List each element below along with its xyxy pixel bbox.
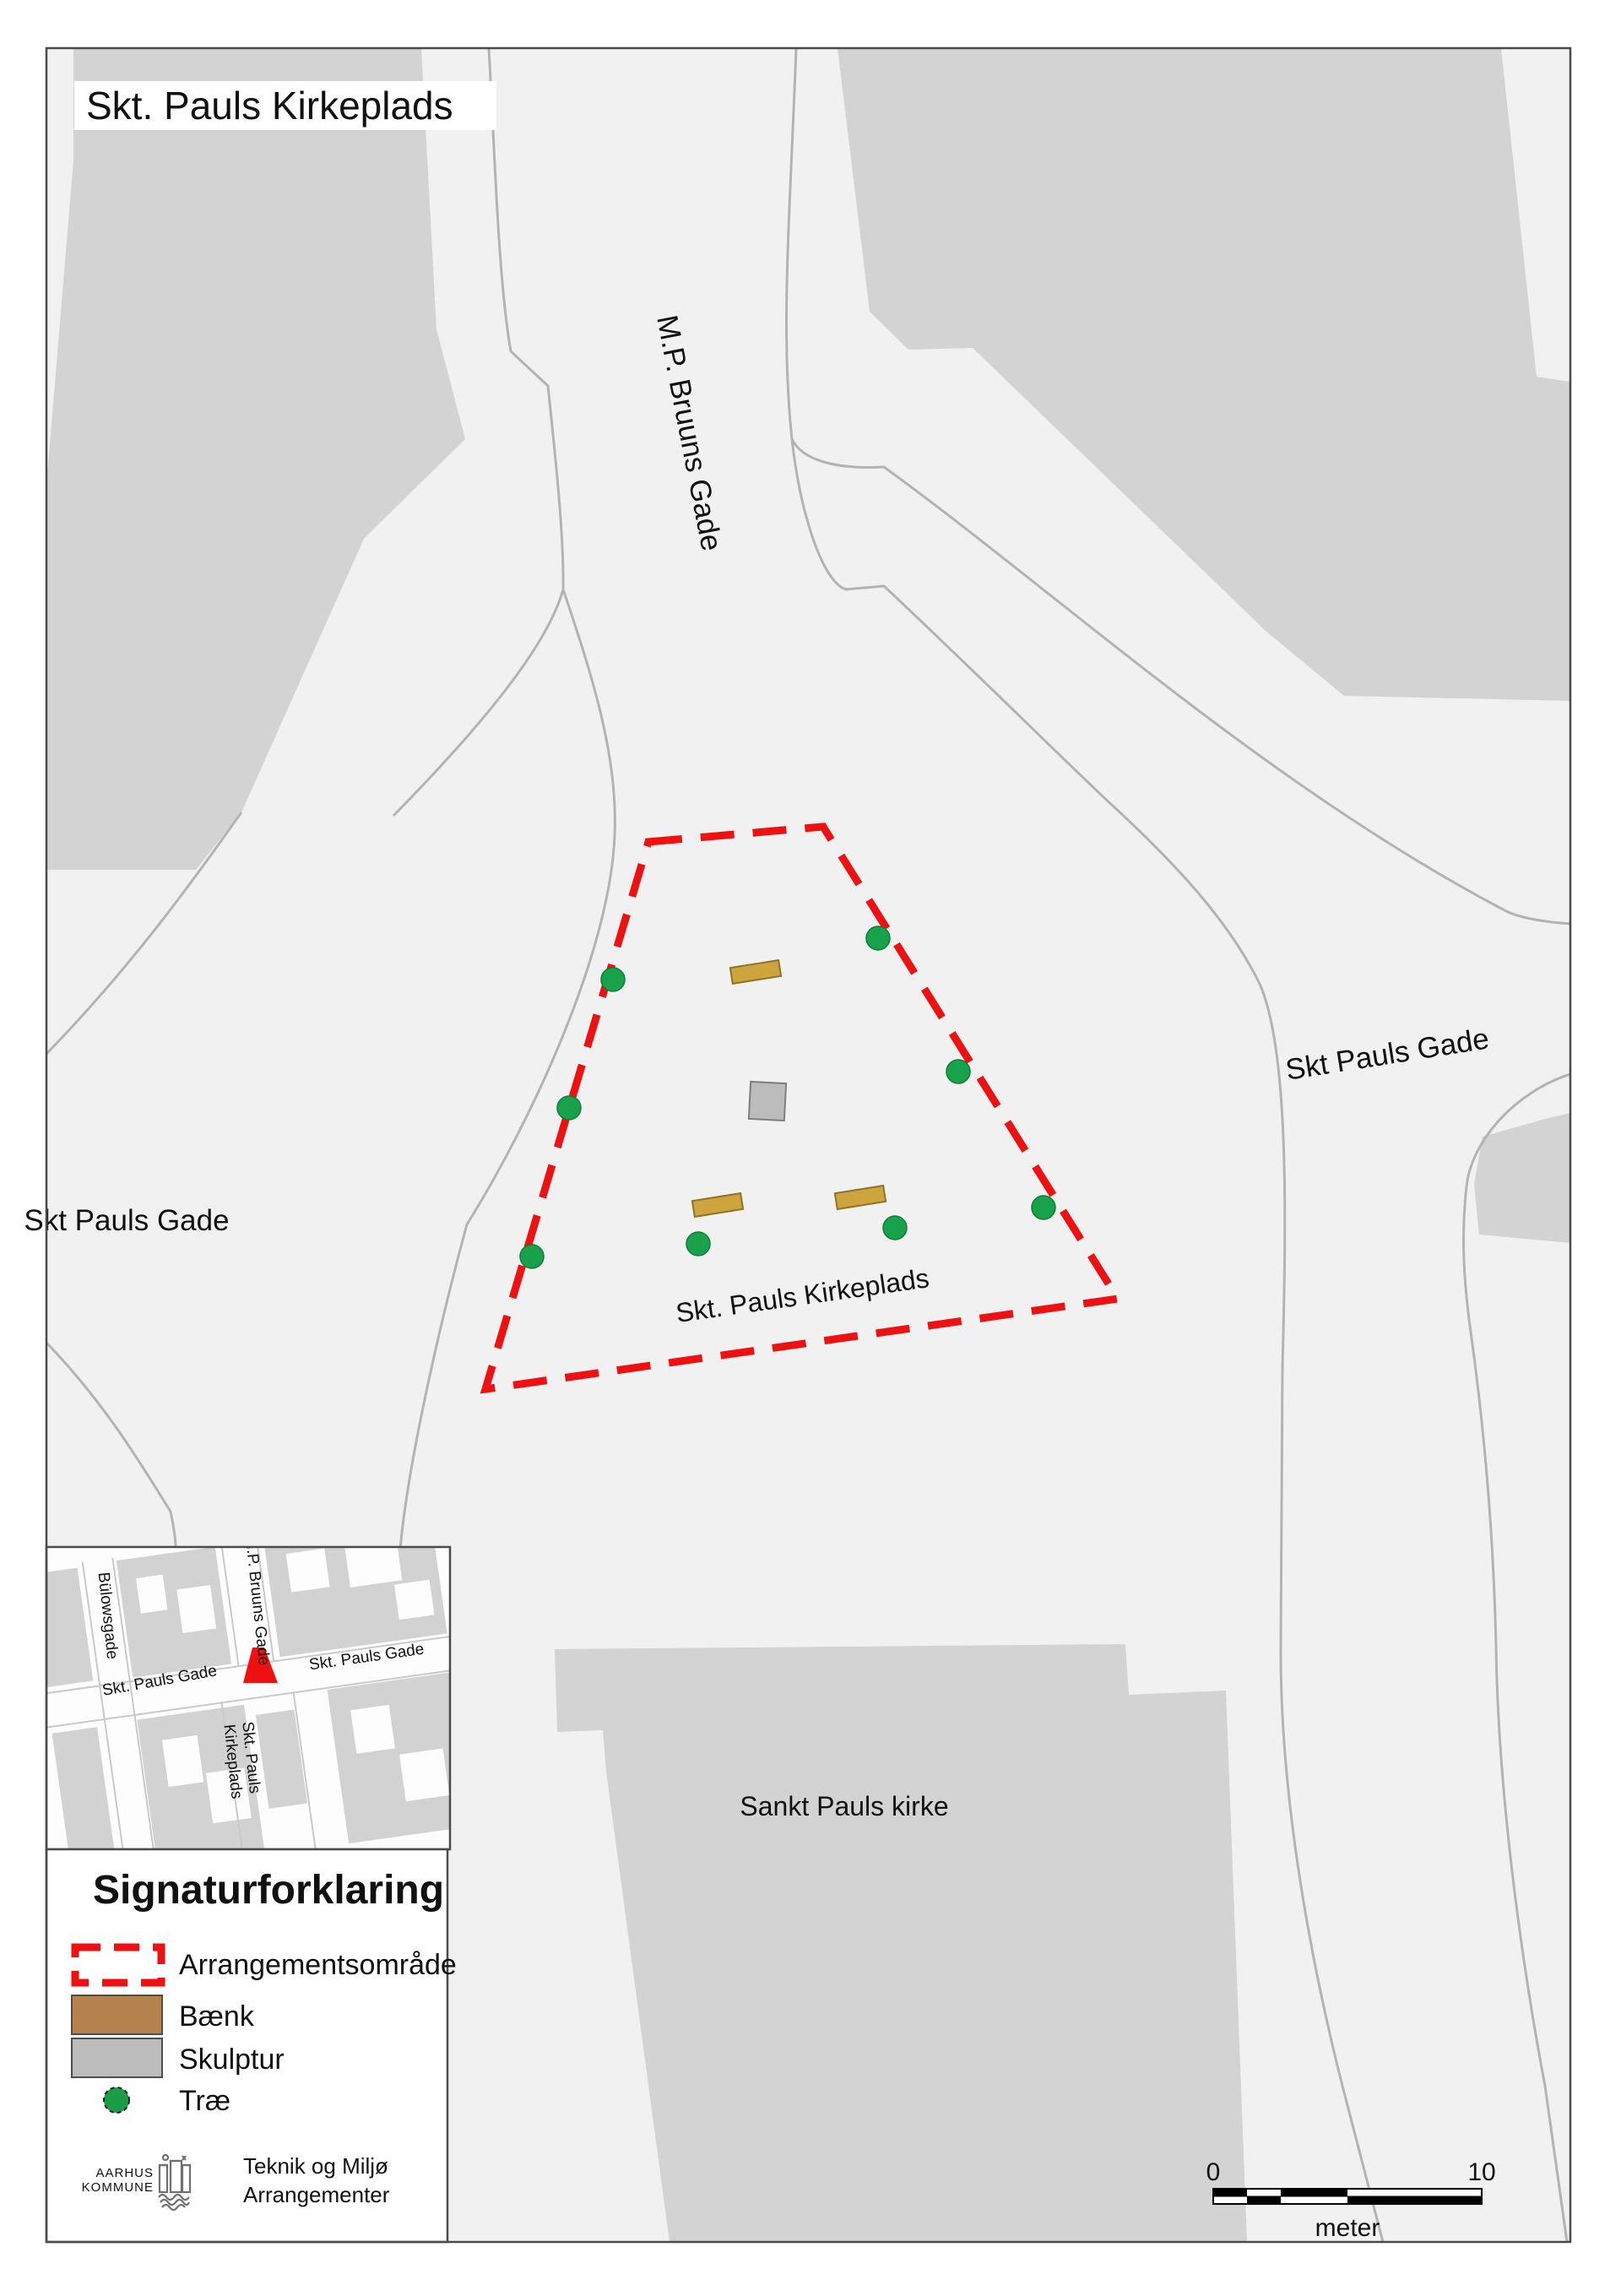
tree-marker xyxy=(883,1216,907,1240)
scale-end-label: 10 xyxy=(1467,2158,1495,2186)
legend-panel: Signaturforklaring Arrangementsområde Bæ… xyxy=(46,1849,457,2242)
street-label-skt-pauls-gade-west: Skt Pauls Gade xyxy=(24,1204,229,1237)
scale-start-label: 0 xyxy=(1206,2158,1221,2186)
tree-marker xyxy=(866,926,890,950)
scale-unit-label: meter xyxy=(1315,2214,1380,2242)
tree-marker xyxy=(686,1232,710,1256)
legend-org-line1: Teknik og Miljø xyxy=(243,2153,388,2179)
legend-label-tree: Træ xyxy=(179,2085,230,2117)
page-title: Skt. Pauls Kirkeplads xyxy=(86,84,453,128)
legend-label-sculpture: Skulptur xyxy=(179,2044,285,2076)
tree-marker xyxy=(601,968,625,991)
scale-bar-graphic xyxy=(1213,2189,1482,2204)
sculpture-marker xyxy=(749,1082,786,1121)
legend-org-line2: Arrangementer xyxy=(243,2182,390,2207)
building-label-sankt-pauls-kirke: Sankt Pauls kirke xyxy=(740,1791,948,1821)
legend-label-event-area: Arrangementsområde xyxy=(179,1949,457,1981)
sculpture-layer xyxy=(749,1082,786,1121)
logo-text-aarhus: AARHUS xyxy=(95,2166,154,2180)
legend-symbol-sculpture xyxy=(72,2038,162,2077)
legend-label-bench: Bænk xyxy=(179,2000,255,2033)
tree-marker xyxy=(520,1245,544,1268)
legend-symbol-tree xyxy=(104,2087,129,2113)
map-title: Skt. Pauls Kirkeplads xyxy=(74,81,496,130)
inset-map: Bülowsgade M.P. Bruuns Gade Skt. Pauls G… xyxy=(20,1511,478,1883)
legend-title: Signaturforklaring xyxy=(93,1868,444,1913)
tree-marker xyxy=(1032,1196,1055,1219)
building-church xyxy=(555,1644,1247,2242)
tree-marker xyxy=(557,1096,581,1120)
logo-text-kommune: KOMMUNE xyxy=(82,2180,154,2195)
legend-symbol-bench xyxy=(72,1995,162,2034)
tree-marker xyxy=(946,1060,970,1083)
legend-symbol-event-area xyxy=(75,1947,161,1983)
map-canvas: M.P. Bruuns Gade Skt Pauls Gade Sankt Pa… xyxy=(0,0,1621,2292)
